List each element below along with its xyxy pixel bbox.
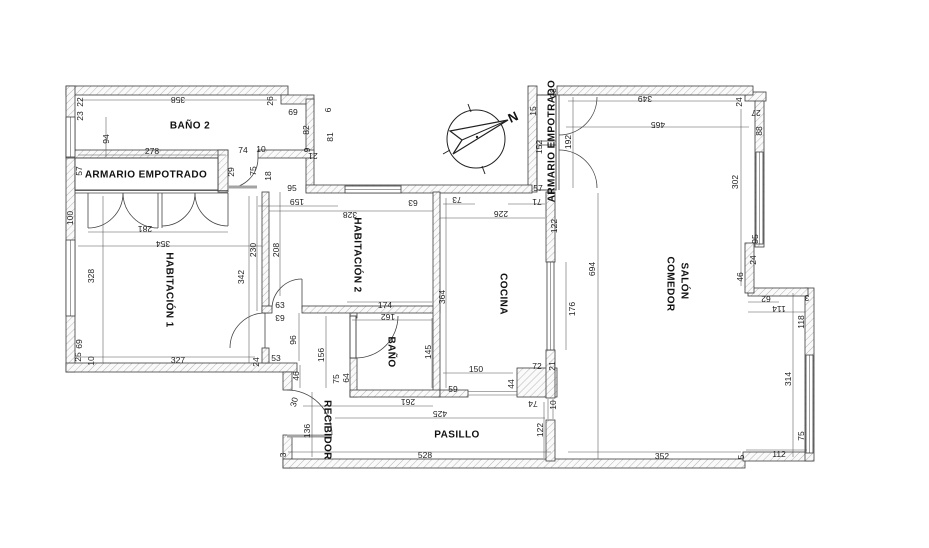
dimension-label: 328 bbox=[86, 269, 96, 283]
dimension-label: 23 bbox=[75, 111, 85, 121]
room-label: HABITACIÓN 1 bbox=[164, 252, 177, 327]
dimension-label: 3 bbox=[278, 452, 288, 457]
dimension-label: 465 bbox=[651, 120, 665, 130]
dimension-label: 5 bbox=[736, 454, 746, 459]
dimension-label: 349 bbox=[638, 94, 652, 104]
dimension-label: 27 bbox=[751, 108, 761, 118]
dimension-label: 24 bbox=[734, 97, 744, 107]
dimension-label: 96 bbox=[288, 335, 298, 345]
dimension-label: 44 bbox=[506, 379, 516, 389]
dimension-label: 62 bbox=[761, 294, 771, 304]
dimension-label: 364 bbox=[437, 290, 447, 304]
dimension-label: 152 bbox=[534, 140, 544, 154]
dimension-label: 159 bbox=[290, 197, 304, 207]
dimension-label: 302 bbox=[730, 175, 740, 189]
dimension-label: 208 bbox=[271, 243, 281, 257]
dimension-label: 145 bbox=[423, 345, 433, 359]
dimension-label: 122 bbox=[535, 423, 545, 437]
dimension-label: 22 bbox=[75, 97, 85, 107]
dimension-label: 24 bbox=[748, 255, 758, 265]
dimension-label: 73 bbox=[452, 195, 462, 205]
floor-plan-svg: BAÑO 2ARMARIO EMPOTRADOHABITACIÓN 1HABIT… bbox=[0, 0, 929, 548]
dimension-label: 95 bbox=[750, 234, 760, 244]
dimension-label: 150 bbox=[469, 364, 483, 374]
dimension-label: 46 bbox=[291, 371, 301, 381]
compass-north-label: N bbox=[506, 108, 521, 126]
dimension-label: 122 bbox=[549, 219, 559, 233]
dimension-label: 425 bbox=[433, 409, 447, 419]
dimension-label: 21 bbox=[547, 361, 557, 371]
dimension-label: 156 bbox=[316, 348, 326, 362]
dimension-label: 94 bbox=[101, 134, 111, 144]
dimension-label: 71 bbox=[532, 197, 542, 207]
dimension-label: 53 bbox=[271, 353, 281, 363]
dimension-label: 29 bbox=[226, 167, 236, 177]
dimension-label: 230 bbox=[248, 243, 258, 257]
dimension-label: 352 bbox=[655, 451, 669, 461]
dimension-label: 59 bbox=[448, 384, 458, 394]
dimension-label: 24 bbox=[251, 357, 261, 367]
dimension-label: 63 bbox=[275, 313, 285, 323]
room-label: HABITACIÓN 2 bbox=[352, 217, 365, 292]
dimension-label: 46 bbox=[735, 272, 745, 282]
dimension-label: 26 bbox=[265, 96, 275, 106]
dimension-label: 63 bbox=[408, 198, 418, 208]
dimension-label: 95 bbox=[287, 183, 297, 193]
dimension-label: 10 bbox=[86, 356, 96, 366]
dimension-label: 75 bbox=[331, 374, 341, 384]
dimension-label: 81 bbox=[325, 132, 335, 142]
dimension-label: 176 bbox=[567, 302, 577, 316]
dimension-label: 192 bbox=[563, 135, 573, 149]
dimension-label: 82 bbox=[301, 125, 311, 135]
dimension-label: 328 bbox=[343, 210, 357, 220]
dimension-label: 69 bbox=[74, 339, 84, 349]
dimension-label: 57 bbox=[74, 166, 84, 176]
dimension-label: 114 bbox=[772, 304, 786, 314]
dimension-label: 25 bbox=[73, 352, 83, 362]
floor-plan-canvas: BAÑO 2ARMARIO EMPOTRADOHABITACIÓN 1HABIT… bbox=[0, 0, 929, 548]
dimension-label: 281 bbox=[138, 224, 152, 234]
dimension-label: 694 bbox=[587, 262, 597, 276]
dimension-label: 74 bbox=[528, 399, 538, 409]
dimension-label: 174 bbox=[378, 300, 392, 310]
room-label: COCINA bbox=[498, 273, 509, 315]
dimension-label: 278 bbox=[145, 146, 159, 156]
dimension-label: 327 bbox=[171, 355, 185, 365]
dimension-label: 314 bbox=[783, 372, 793, 386]
dimension-label: 162 bbox=[381, 312, 395, 322]
dimension-label: 74 bbox=[238, 145, 248, 155]
dimension-label: 72 bbox=[532, 361, 542, 371]
room-label: PASILLO bbox=[434, 430, 479, 441]
dimension-label: 15 bbox=[528, 106, 538, 116]
dimension-label: 21 bbox=[308, 151, 318, 161]
dimension-label: 342 bbox=[236, 270, 246, 284]
dimension-label: 10 bbox=[256, 144, 266, 154]
room-label: SALÓN bbox=[679, 263, 692, 300]
dimension-label: 30 bbox=[288, 396, 300, 408]
dimension-label: 28 bbox=[548, 88, 558, 98]
dimension-label: 57 bbox=[533, 183, 543, 193]
dimension-label: 136 bbox=[302, 424, 312, 438]
dimension-label: 226 bbox=[494, 209, 508, 219]
dimension-label: 75 bbox=[796, 431, 806, 441]
dimension-label: 6 bbox=[323, 107, 333, 112]
dimension-label: 10 bbox=[548, 400, 558, 410]
dimension-label: 63 bbox=[275, 300, 285, 310]
dimension-label: 261 bbox=[401, 397, 415, 407]
dimension-label: 354 bbox=[156, 239, 170, 249]
dimension-label: 100 bbox=[65, 211, 75, 225]
dimension-label: 3 bbox=[804, 293, 809, 303]
dimension-label: 112 bbox=[772, 449, 786, 459]
dimension-label: 88 bbox=[754, 126, 764, 136]
dimension-label: 528 bbox=[418, 450, 432, 460]
dimension-label: 69 bbox=[288, 107, 298, 117]
room-label: BAÑO 2 bbox=[170, 119, 210, 132]
built-in-closet-top-left bbox=[75, 158, 228, 228]
dimension-label: 358 bbox=[171, 95, 185, 105]
room-label: ARMARIO EMPOTRADO bbox=[85, 170, 207, 181]
room-label: BAÑO bbox=[386, 336, 399, 367]
dimension-label: 75 bbox=[248, 166, 258, 176]
room-label: COMEDOR bbox=[665, 256, 676, 311]
dimension-label: 64 bbox=[341, 373, 351, 383]
room-label: RECIBIDOR bbox=[322, 400, 333, 460]
dimension-label: 18 bbox=[263, 171, 273, 181]
compass-north-icon bbox=[443, 104, 508, 174]
dimension-label: 118 bbox=[796, 315, 806, 329]
